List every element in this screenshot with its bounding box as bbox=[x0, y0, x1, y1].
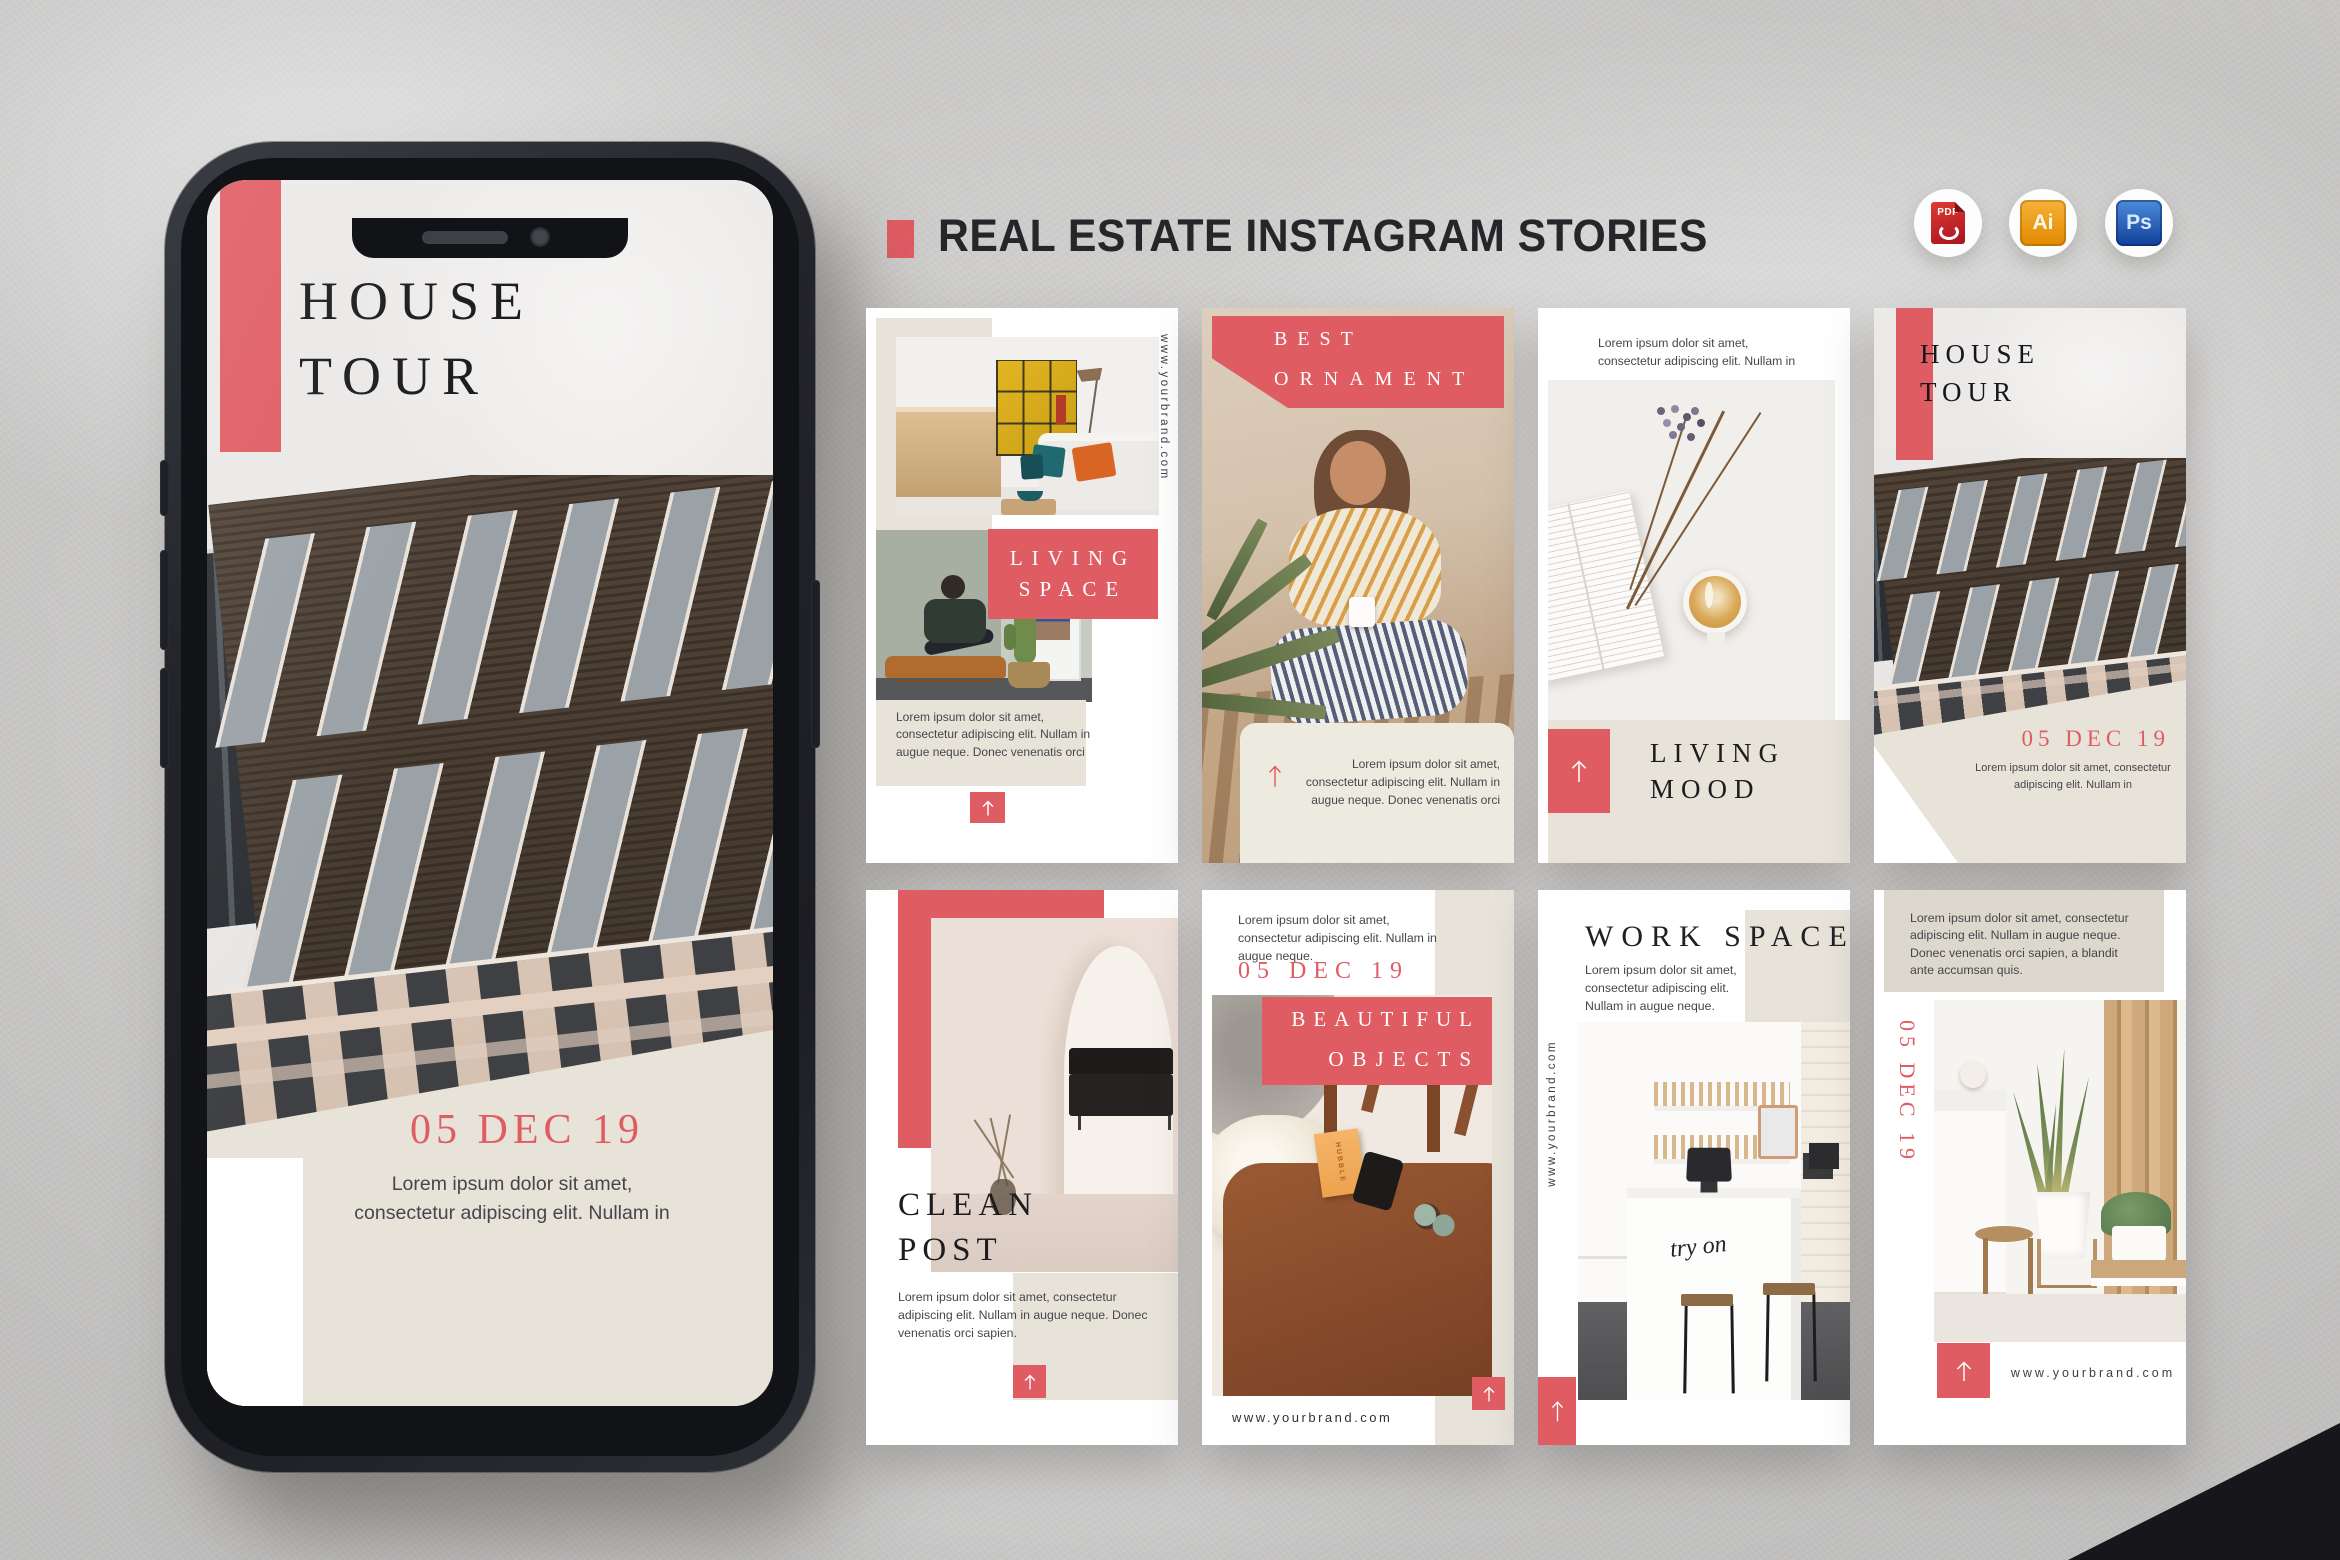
wood-stool bbox=[1681, 1294, 1733, 1306]
arrow-up-icon bbox=[1022, 1373, 1038, 1391]
swipe-up-button bbox=[1538, 1377, 1576, 1445]
story-title-line1: LIVING bbox=[1650, 736, 1785, 772]
phone-volume-up-button bbox=[160, 550, 169, 650]
cosmetic-box-label: HUBBLE bbox=[1334, 1142, 1347, 1184]
phone-notch bbox=[352, 218, 628, 258]
pdf-icon: PDF bbox=[1931, 202, 1965, 244]
phone-speaker bbox=[422, 231, 508, 244]
dark-pillow bbox=[1020, 455, 1044, 480]
phone-power-button bbox=[811, 580, 820, 748]
orange-pillow bbox=[1072, 442, 1117, 482]
arrow-up-icon bbox=[1954, 1359, 1974, 1383]
arrow-up-icon bbox=[1266, 763, 1284, 789]
tablet-register bbox=[1686, 1148, 1732, 1182]
latte-art bbox=[1689, 576, 1741, 628]
website-label: www.yourbrand.com bbox=[1232, 1410, 1392, 1425]
story-intro-text: Lorem ipsum dolor sit amet, consectetur … bbox=[1598, 335, 1803, 370]
story-body-text: Lorem ipsum dolor sit amet, consectetur … bbox=[1974, 760, 2172, 793]
story-title-line2: POST bbox=[898, 1228, 1038, 1273]
story-title-line2: TOUR bbox=[1920, 374, 2040, 412]
person-head bbox=[1330, 441, 1386, 505]
story-card-living-mood: Lorem ipsum dolor sit amet, consectetur … bbox=[1538, 308, 1850, 863]
illustrator-icon: Ai bbox=[2020, 200, 2066, 246]
story-body-text: Lorem ipsum dolor sit amet, consectetur … bbox=[1910, 910, 2140, 980]
story-title: HOUSE TOUR bbox=[1920, 336, 2040, 412]
phone-mockup: HOUSE TOUR 05 DEC 19 Lorem ipsum dolor s… bbox=[165, 142, 815, 1472]
banner-title-line1: LIVING bbox=[1010, 543, 1136, 575]
story-card-beautiful-objects: Lorem ipsum dolor sit amet, consectetur … bbox=[1202, 890, 1514, 1445]
pdf-page-fold bbox=[1955, 202, 1965, 212]
story-card-clean-post: CLEAN POST Lorem ipsum dolor sit amet, c… bbox=[866, 890, 1178, 1445]
story-card-house-tour: HOUSE TOUR 05 DEC 19 Lorem ipsum dolor s… bbox=[1874, 308, 2186, 863]
story-card-plant-corner: Lorem ipsum dolor sit amet, consectetur … bbox=[1874, 890, 2186, 1445]
caption-box: Lorem ipsum dolor sit amet, consectetur … bbox=[1240, 723, 1514, 863]
story-body-text: Lorem ipsum dolor sit amet, consectetur … bbox=[898, 1289, 1153, 1342]
story-card-work-space: WORK SPACE Lorem ipsum dolor sit amet, c… bbox=[1538, 890, 1850, 1445]
banner-title-line2: SPACE bbox=[1019, 574, 1127, 606]
wood-stool bbox=[1975, 1226, 2033, 1242]
story-title-line2: MOOD bbox=[1650, 772, 1785, 808]
story-body-text: Lorem ipsum dolor sit amet, consectetur … bbox=[1288, 755, 1500, 809]
banner-title-line2: OBJECTS bbox=[1328, 1047, 1480, 1072]
date-vertical-label: 05 DEC 19 bbox=[1894, 1020, 1920, 1164]
book-and-coffee-photo bbox=[1548, 380, 1835, 720]
story-title: HOUSE TOUR bbox=[299, 264, 534, 413]
format-badge-pdf: PDF bbox=[1914, 189, 1982, 257]
plant-interior-photo bbox=[1934, 1000, 2186, 1342]
story-title: CLEAN POST bbox=[898, 1183, 1038, 1272]
stool-legs bbox=[1765, 1292, 1817, 1382]
title-accent-square bbox=[887, 220, 914, 258]
latte-cup bbox=[1683, 570, 1747, 634]
page-title: REAL ESTATE INSTAGRAM STORIES bbox=[938, 210, 1708, 262]
website-vertical-label: www.yourbrand.com bbox=[1546, 1040, 1558, 1187]
try-on-script: try on bbox=[1669, 1231, 1728, 1264]
mug bbox=[1349, 597, 1375, 627]
title-accent-bar bbox=[220, 180, 281, 452]
wall-art-red-cell bbox=[1056, 395, 1066, 424]
website-label: www.yourbrand.com bbox=[1994, 1366, 2186, 1380]
basket-pot bbox=[1008, 662, 1050, 688]
stool-legs bbox=[1683, 1303, 1735, 1393]
mansard-roof bbox=[208, 475, 773, 1007]
swipe-up-button bbox=[1548, 729, 1610, 813]
banner-title-line1: BEST bbox=[1274, 328, 1363, 351]
wood-plant-stand bbox=[2037, 1239, 2097, 1288]
story-body-text: Lorem ipsum dolor sit amet, consectetur … bbox=[347, 1170, 677, 1229]
floor bbox=[876, 678, 1092, 702]
title-banner: LIVING SPACE bbox=[988, 529, 1158, 619]
tile-floor bbox=[1934, 1294, 2186, 1342]
website-vertical-label: www.yourbrand.com bbox=[1158, 334, 1170, 481]
gift-boxes bbox=[1809, 1143, 1839, 1169]
phone-screen-story-house-tour: HOUSE TOUR 05 DEC 19 Lorem ipsum dolor s… bbox=[207, 180, 773, 1406]
latte-leaf-pattern bbox=[1705, 582, 1713, 608]
arrow-up-icon bbox=[1568, 756, 1590, 786]
story-title: WORK SPACE bbox=[1585, 920, 1850, 954]
phone-camera bbox=[530, 227, 550, 247]
photoshop-icon: Ps bbox=[2116, 200, 2162, 246]
wood-sideboard bbox=[896, 407, 1001, 497]
swipe-up-button bbox=[1472, 1377, 1505, 1410]
living-room-photo bbox=[896, 337, 1159, 515]
copper-mirror bbox=[1758, 1105, 1798, 1159]
pdf-swirl-glyph bbox=[1939, 224, 1959, 240]
arrow-up-icon bbox=[980, 799, 996, 817]
story-title-line1: CLEAN bbox=[898, 1183, 1038, 1228]
wood-drawer-box bbox=[2091, 1260, 2186, 1286]
arrow-up-icon bbox=[1481, 1385, 1497, 1403]
person-on-bench bbox=[924, 599, 986, 643]
story-body-text: Lorem ipsum dolor sit amet, consectetur … bbox=[1585, 962, 1755, 1015]
black-sofa bbox=[1069, 1074, 1173, 1116]
shop-interior-photo: try on bbox=[1578, 1022, 1850, 1400]
arrow-up-icon bbox=[1549, 1399, 1566, 1423]
coffee-table bbox=[1001, 499, 1056, 515]
story-date: 05 DEC 19 bbox=[377, 1106, 677, 1154]
wood-stool bbox=[1763, 1283, 1815, 1295]
leather-bench bbox=[885, 656, 1006, 678]
swipe-up-button bbox=[1937, 1343, 1990, 1398]
cup-handle bbox=[1707, 632, 1725, 646]
dried-flower-blooms bbox=[1657, 407, 1665, 415]
story-title-line1: HOUSE bbox=[299, 264, 534, 339]
banner-title-line1: BEAUTIFUL bbox=[1291, 1007, 1480, 1032]
story-date: 05 DEC 19 bbox=[1238, 958, 1409, 985]
phone-volume-down-button bbox=[160, 668, 169, 768]
globe-lamp bbox=[1960, 1062, 1986, 1088]
dormer-windows-row bbox=[207, 475, 773, 750]
banner-title-line2: ORNAMENT bbox=[1274, 368, 1475, 391]
dormer-windows-row bbox=[1874, 458, 2186, 582]
swipe-up-button bbox=[970, 792, 1005, 823]
title-banner: BEAUTIFUL OBJECTS bbox=[1262, 997, 1492, 1085]
format-badge-illustrator: Ai bbox=[2009, 189, 2077, 257]
story-body-text: Lorem ipsum dolor sit amet, consectetur … bbox=[896, 709, 1096, 761]
showcase-scene: REAL ESTATE INSTAGRAM STORIES PDF Ai Ps bbox=[0, 0, 2340, 1560]
story-title: LIVING MOOD bbox=[1650, 736, 1785, 807]
story-title-line1: HOUSE bbox=[1920, 336, 2040, 374]
floor-lamp-shade bbox=[1077, 368, 1104, 383]
story-date: 05 DEC 19 bbox=[2022, 726, 2171, 752]
swipe-up-button bbox=[1013, 1365, 1046, 1398]
format-badge-photoshop: Ps bbox=[2105, 189, 2173, 257]
phone-mute-switch bbox=[160, 460, 169, 516]
story-title-line2: TOUR bbox=[299, 339, 534, 414]
story-card-best-ornament: BEST ORNAMENT Lorem ipsum dolor sit amet… bbox=[1202, 308, 1514, 863]
white-corner-block bbox=[207, 1158, 303, 1406]
story-card-living-space: www.yourbrand.com LIVING SPACE Lorem ips… bbox=[866, 308, 1178, 863]
person-head bbox=[941, 575, 965, 599]
